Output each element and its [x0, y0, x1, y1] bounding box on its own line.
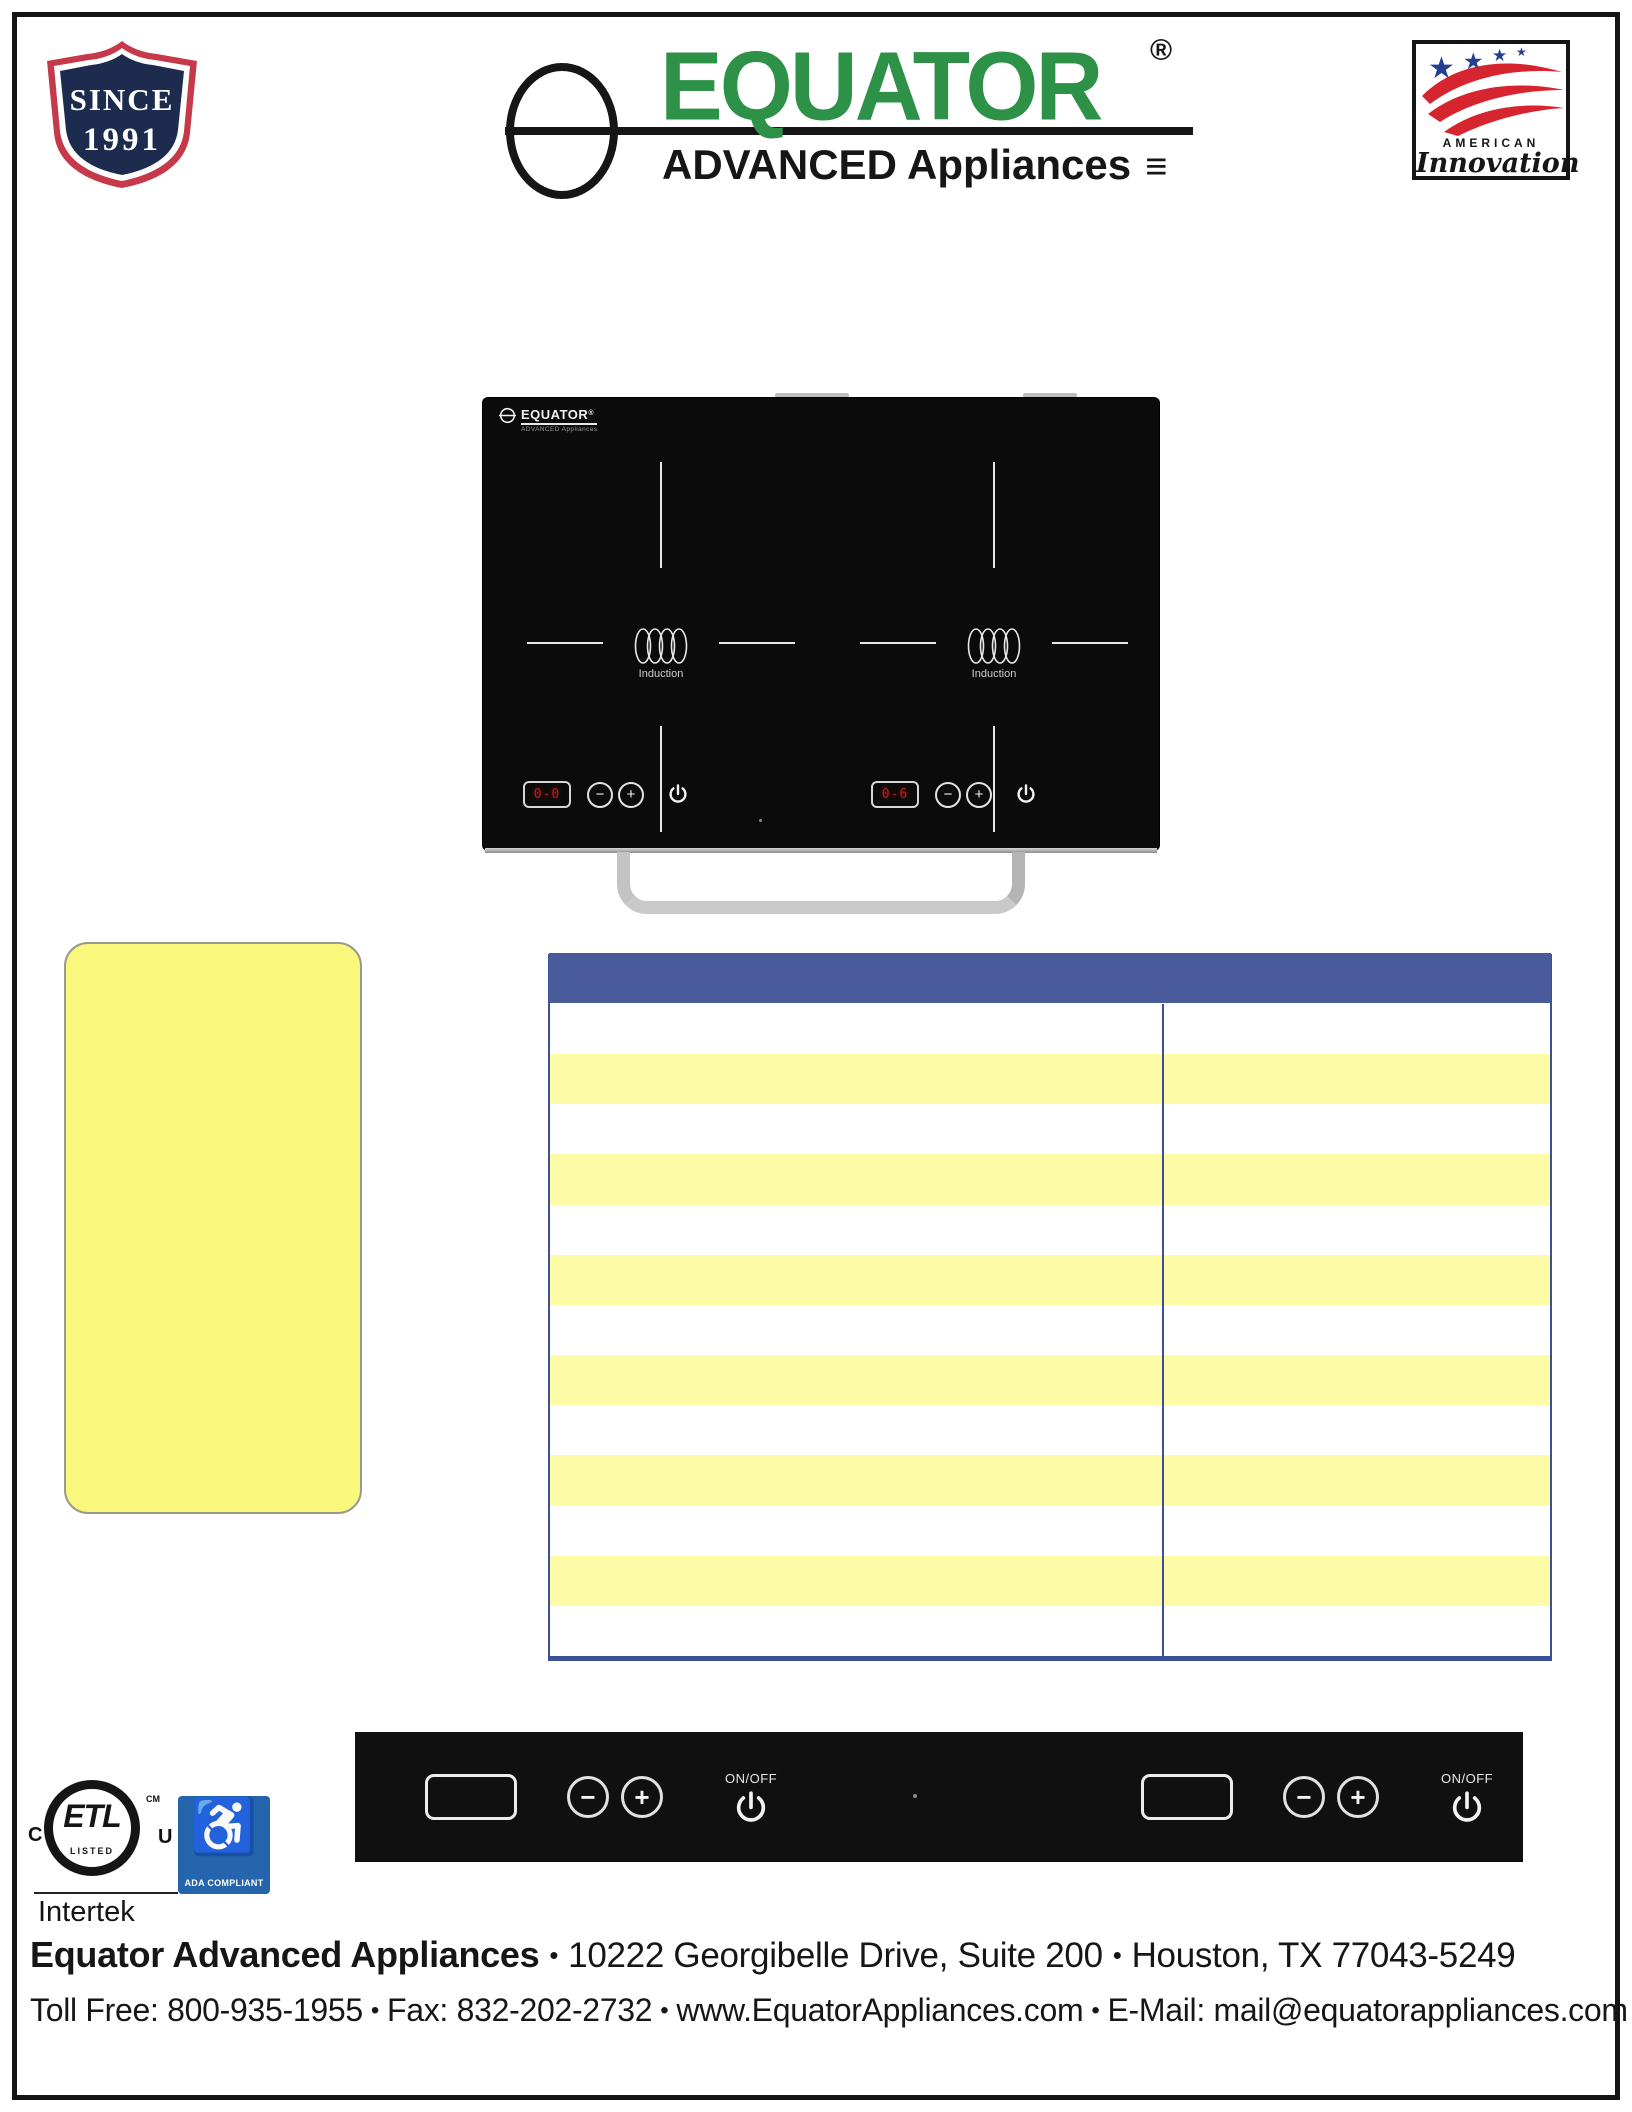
- etl-c-letter: C: [28, 1824, 42, 1847]
- american-innovation-logo: ★ ★ ★ ★ AMERICAN Innovation: [1412, 40, 1570, 180]
- led-display: 0-6: [871, 781, 919, 808]
- plus-button: +: [966, 782, 992, 808]
- burner-label: Induction: [964, 668, 1024, 680]
- spec-table-row: [550, 1606, 1550, 1656]
- wheelchair-icon: ♿: [178, 1798, 270, 1857]
- left-control-group: − + ON/OFF: [425, 1732, 777, 1862]
- zone-mark-line: [993, 726, 995, 832]
- power-icon: [1447, 1789, 1487, 1829]
- cooktop-mini-logo: EQUATOR® ADVANCED Appliances: [499, 407, 597, 433]
- zone-mark-line: [527, 642, 603, 644]
- etl-letters: ETL: [44, 1798, 140, 1835]
- spec-table-row: [550, 1255, 1550, 1305]
- website: www.EquatorAppliances.com: [676, 1992, 1083, 2028]
- minus-button: −: [935, 782, 961, 808]
- fax: Fax: 832-202-2732: [387, 1992, 652, 2028]
- toll-free: Toll Free: 800-935-1955: [30, 1992, 363, 2028]
- etl-cm-text: CM: [146, 1794, 160, 1804]
- equator-wordmark: EQUATOR: [660, 30, 1100, 142]
- city-state-zip: Houston, TX 77043-5249: [1132, 1936, 1516, 1975]
- panel-dot: [759, 819, 762, 822]
- zone-mark-line: [1052, 642, 1128, 644]
- email: E-Mail: mail@equatorappliances.com: [1107, 1992, 1627, 2028]
- bullet: •: [652, 1997, 676, 2024]
- etl-u-letter: U: [158, 1826, 172, 1849]
- innovation-text: Innovation: [1416, 148, 1566, 179]
- bullet: •: [539, 1940, 568, 1970]
- mini-logo-tagline: ADVANCED Appliances: [521, 426, 597, 433]
- mini-logo-brand: EQUATOR®: [521, 407, 597, 425]
- spec-table-column-divider: [1162, 1004, 1164, 1656]
- zone-mark-line: [860, 642, 936, 644]
- spec-table-row: [550, 1154, 1550, 1204]
- spec-table-row: [550, 1405, 1550, 1455]
- company-name: Equator Advanced Appliances: [30, 1934, 539, 1975]
- ada-compliant-label: ADA COMPLIANT: [178, 1878, 270, 1888]
- spec-table-row: [550, 1305, 1550, 1355]
- plus-button: +: [1337, 1776, 1379, 1818]
- zone-mark-line: [660, 726, 662, 832]
- power-icon: [666, 783, 690, 807]
- right-burner-controls: 0-6 − +: [871, 781, 1038, 808]
- minus-button: −: [567, 1776, 609, 1818]
- spec-table-row: [550, 1355, 1550, 1405]
- spec-table-row: [550, 1054, 1550, 1104]
- cooktop-product-photo: EQUATOR® ADVANCED Appliances Induction: [483, 398, 1159, 850]
- zone-mark-line: [660, 462, 662, 568]
- spec-table: [548, 954, 1552, 1661]
- zone-mark-line: [719, 642, 795, 644]
- burner-label: Induction: [631, 668, 691, 680]
- spec-table-row: [550, 1205, 1550, 1255]
- power-icon: [731, 1789, 771, 1829]
- burner-zone-left: Induction: [527, 454, 795, 834]
- spec-table-row: [550, 1556, 1550, 1606]
- footer-contact-line: Toll Free: 800-935-1955•Fax: 832-202-273…: [30, 1992, 1605, 2029]
- street-address: 10222 Georgibelle Drive, Suite 200: [568, 1936, 1103, 1975]
- star-icon: ★: [1428, 54, 1455, 84]
- star-icon: ★: [1492, 47, 1507, 64]
- spec-table-body: [550, 1004, 1550, 1656]
- minus-button: −: [587, 782, 613, 808]
- spec-table-header: [549, 953, 1551, 1003]
- etl-listed-text: LISTED: [44, 1846, 140, 1856]
- on-off-label: ON/OFF: [725, 1771, 777, 1786]
- since-1991-badge: SINCE 1991: [44, 38, 200, 190]
- minus-button: −: [1283, 1776, 1325, 1818]
- right-control-group: − + ON/OFF: [1141, 1732, 1493, 1862]
- cooktop-handle: [617, 852, 1025, 914]
- led-display: 0-0: [523, 781, 571, 808]
- equator-ellipse-icon: [499, 407, 516, 424]
- power-icon: [1014, 783, 1038, 807]
- star-icon: ★: [1516, 46, 1527, 58]
- bullet: •: [363, 1997, 387, 2024]
- star-icon: ★: [1463, 50, 1484, 73]
- left-burner-controls: 0-0 − +: [523, 781, 690, 808]
- display-window: [1141, 1774, 1233, 1820]
- etl-divider: [34, 1892, 178, 1894]
- cooktop-glass-panel: EQUATOR® ADVANCED Appliances Induction: [483, 398, 1159, 850]
- spec-table-row: [550, 1104, 1550, 1154]
- display-window: [425, 1774, 517, 1820]
- footer-address-line: Equator Advanced Appliances•10222 Georgi…: [30, 1934, 1605, 1976]
- menu-bars-glyph: ≡: [1145, 146, 1167, 188]
- registered-mark: ®: [1150, 34, 1172, 68]
- intertek-wordmark: Intertek: [38, 1896, 135, 1929]
- zone-mark-line: [993, 462, 995, 568]
- badge-since-text: SINCE: [44, 82, 200, 118]
- burner-zone-right: Induction: [860, 454, 1128, 834]
- induction-coil-icon: [634, 626, 688, 666]
- bullet: •: [1103, 1940, 1132, 1970]
- tagline-text: ADVANCED Appliances: [662, 141, 1131, 188]
- bullet: •: [1083, 1997, 1107, 2024]
- plus-button: +: [621, 1776, 663, 1818]
- badge-year-text: 1991: [44, 122, 200, 159]
- panel-dot: [913, 1794, 917, 1798]
- control-panel-closeup: − + ON/OFF − + ON/OFF: [355, 1732, 1523, 1862]
- ada-compliant-mark: ♿ ADA COMPLIANT: [178, 1796, 270, 1894]
- spec-table-row: [550, 1506, 1550, 1556]
- spec-table-row: [550, 1455, 1550, 1505]
- spec-table-row: [550, 1004, 1550, 1054]
- on-off-label: ON/OFF: [1441, 1771, 1493, 1786]
- induction-coil-icon: [967, 626, 1021, 666]
- plus-button: +: [618, 782, 644, 808]
- etl-listed-mark: ETL LISTED CM C U Intertek: [28, 1742, 188, 1922]
- yellow-note-box: [64, 942, 362, 1514]
- logo-tagline: ADVANCED Appliances≡: [662, 141, 1167, 189]
